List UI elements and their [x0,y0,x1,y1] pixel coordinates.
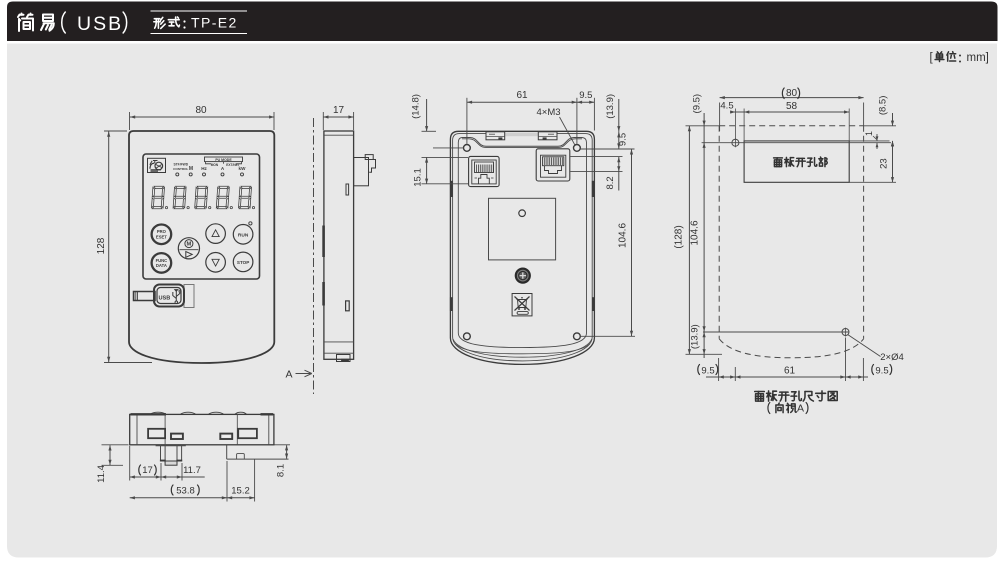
svg-text:80: 80 [786,88,798,99]
svg-text:Hz: Hz [201,166,207,171]
svg-text:4.5: 4.5 [720,101,733,112]
svg-text:FUNC: FUNC [156,258,168,263]
svg-text:8.2: 8.2 [605,176,616,189]
svg-text:mm]: mm] [967,52,989,64]
svg-text:RUN: RUN [238,232,249,238]
svg-text:80: 80 [195,105,207,116]
svg-text:ESET: ESET [156,235,167,240]
svg-text:58: 58 [786,101,798,112]
svg-text:11.7: 11.7 [183,465,201,476]
svg-text:A: A [285,369,292,381]
svg-text:USB: USB [77,13,123,35]
svg-text:104.6: 104.6 [689,220,700,245]
svg-text:104.6: 104.6 [618,223,629,248]
svg-text:4×M3: 4×M3 [536,107,560,118]
svg-text:(8.5): (8.5) [877,96,888,116]
svg-text:PU MODE: PU MODE [215,158,232,162]
svg-text:STOP: STOP [237,260,249,265]
svg-text:17: 17 [333,105,345,116]
svg-text:61: 61 [516,90,528,101]
svg-text:(9.5): (9.5) [691,94,702,114]
svg-text:128: 128 [96,237,107,254]
svg-text:11.4: 11.4 [96,465,107,483]
svg-text:61: 61 [784,365,796,376]
svg-text:EXT/NET: EXT/NET [226,163,240,167]
svg-text:23: 23 [879,158,890,169]
svg-text:9.5: 9.5 [579,90,592,101]
svg-text:2×Ø4: 2×Ø4 [880,352,904,363]
svg-text:CONTROL: CONTROL [173,167,188,171]
svg-text:8.1: 8.1 [275,464,286,477]
svg-text:(13.9): (13.9) [605,94,616,119]
svg-text:1: 1 [864,131,874,136]
svg-text:(128): (128) [674,225,685,248]
svg-text:(14.8): (14.8) [411,94,422,119]
svg-text:DATA: DATA [156,263,167,268]
svg-text:17: 17 [142,465,153,476]
svg-text:TP-E2: TP-E2 [191,15,238,31]
svg-text:15.2: 15.2 [231,485,250,496]
svg-text:53.8: 53.8 [176,485,195,496]
svg-text:(13.9): (13.9) [689,324,700,349]
svg-text:9.5: 9.5 [875,365,888,376]
svg-text:9.5: 9.5 [701,365,714,376]
svg-text:MON: MON [211,163,219,167]
svg-text:PRO: PRO [157,229,167,234]
svg-text:M: M [189,166,193,172]
svg-text:USB: USB [159,295,171,301]
svg-text:M: M [186,242,191,248]
svg-text:A: A [797,403,804,415]
